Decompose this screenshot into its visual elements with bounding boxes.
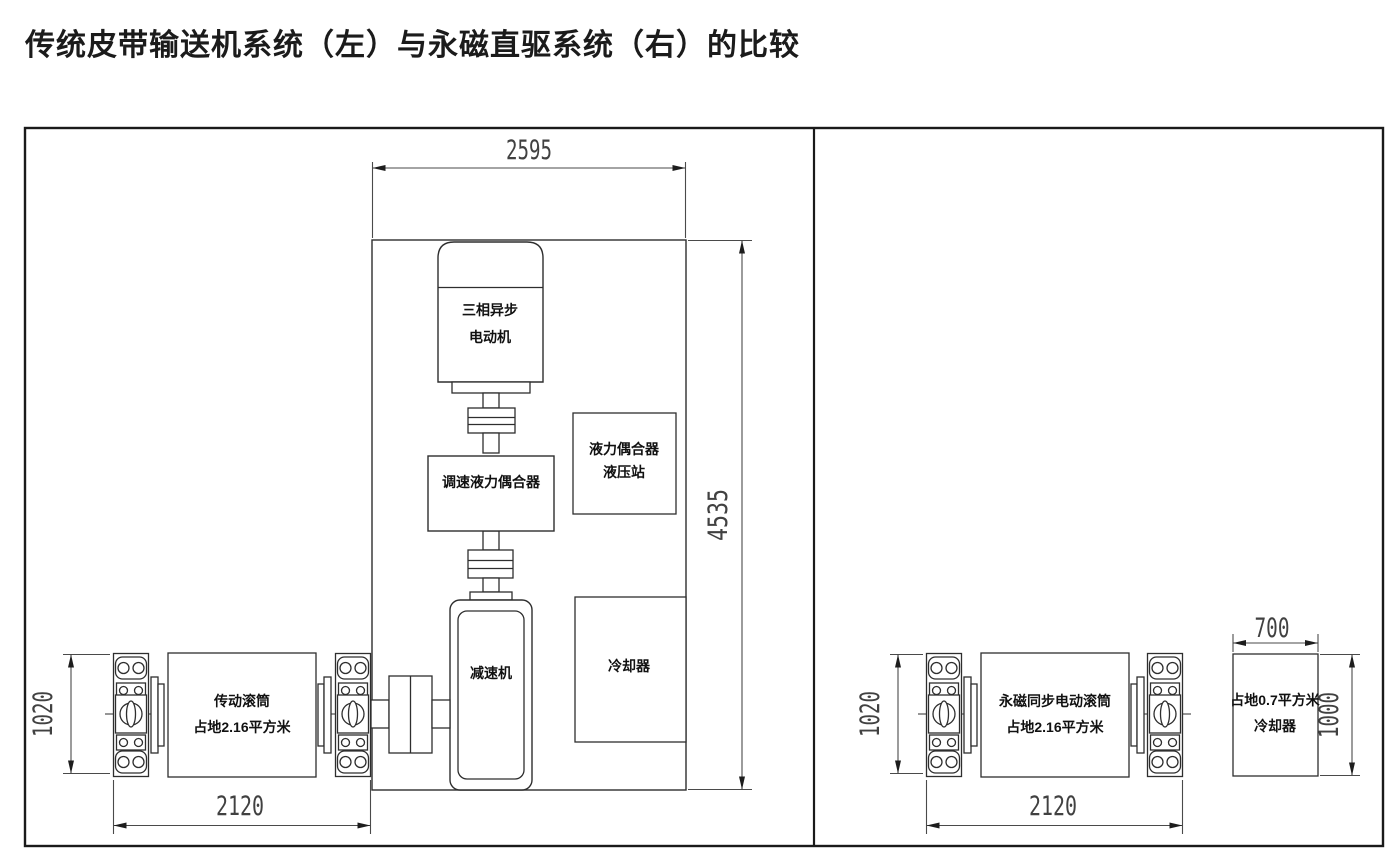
right-cooler: 占地0.7平方米 冷却器 [1230, 654, 1320, 776]
drum-end-flange [158, 684, 164, 746]
drum-body [981, 653, 1129, 777]
shaft-segment [483, 578, 499, 592]
right-drum-label-line2: 占地2.16平方米 [1006, 719, 1104, 735]
drum-end-flange [318, 684, 324, 746]
hydraulic-station: 液力偶合器 液压站 [573, 413, 676, 514]
shaft-segment [483, 433, 499, 453]
figure-canvas: 传统皮带输送机系统（左）与永磁直驱系统（右）的比较 [0, 0, 1400, 850]
dim-enclosure-width-text: 2595 [506, 135, 552, 166]
right-drum-assembly: 永磁同步电动滚筒 占地2.16平方米 [918, 653, 1191, 777]
left-cooler: 冷却器 [575, 597, 686, 742]
right-cooler-label-line2: 冷却器 [1254, 718, 1297, 734]
hydraulic-station-label-line2: 液压站 [603, 464, 645, 480]
comparison-drawing: 2595 4535 三相异步 电动机 [0, 0, 1400, 850]
drum-end-flange [971, 684, 977, 746]
shaft-segment [483, 393, 499, 408]
speed-coupling-label: 调速液力偶合器 [442, 474, 541, 490]
dim-cooler-width-text: 700 [1255, 613, 1290, 644]
dim-enclosure-height-text: 4535 [703, 489, 734, 541]
gearbox: 减速机 [450, 600, 532, 790]
left-cooler-label: 冷却器 [608, 658, 651, 674]
gearbox-label: 减速机 [470, 665, 512, 681]
right-drum-label-line1: 永磁同步电动滚筒 [998, 693, 1111, 709]
gearbox-input-flange [470, 592, 512, 600]
drum-end-flange [151, 677, 158, 753]
left-drum-label-line1: 传动滚筒 [213, 693, 270, 709]
gearbox-output-shaft [432, 700, 450, 728]
dim-cooler-height-text: 1000 [1314, 692, 1345, 738]
drum-end-flange [324, 677, 331, 753]
drum-body [168, 653, 316, 777]
motor: 三相异步 电动机 [438, 242, 543, 393]
right-cooler-label-line1: 占地0.7平方米 [1230, 692, 1320, 708]
speed-coupling: 调速液力偶合器 [428, 456, 554, 531]
drum-end-flange [964, 677, 971, 753]
shaft-coupling-lower [468, 550, 513, 578]
shaft-segment [483, 531, 499, 550]
dim-left-drum-height-text: 1020 [28, 691, 59, 737]
shaft-coupling-upper [468, 408, 515, 433]
drum-end-flange [1137, 677, 1144, 753]
dim-right-drum-width-text: 2120 [1029, 791, 1077, 822]
left-drum-label-line2: 占地2.16平方米 [193, 719, 291, 735]
drum-end-flange [1131, 684, 1137, 746]
dim-right-drum-height-text: 1020 [855, 691, 886, 737]
motor-label-line2: 电动机 [469, 329, 511, 345]
hydraulic-station-label-line1: 液力偶合器 [589, 441, 660, 457]
dim-left-drum-width-text: 2120 [216, 791, 264, 822]
output-shaft [371, 700, 389, 728]
motor-label-line1: 三相异步 [462, 302, 518, 318]
